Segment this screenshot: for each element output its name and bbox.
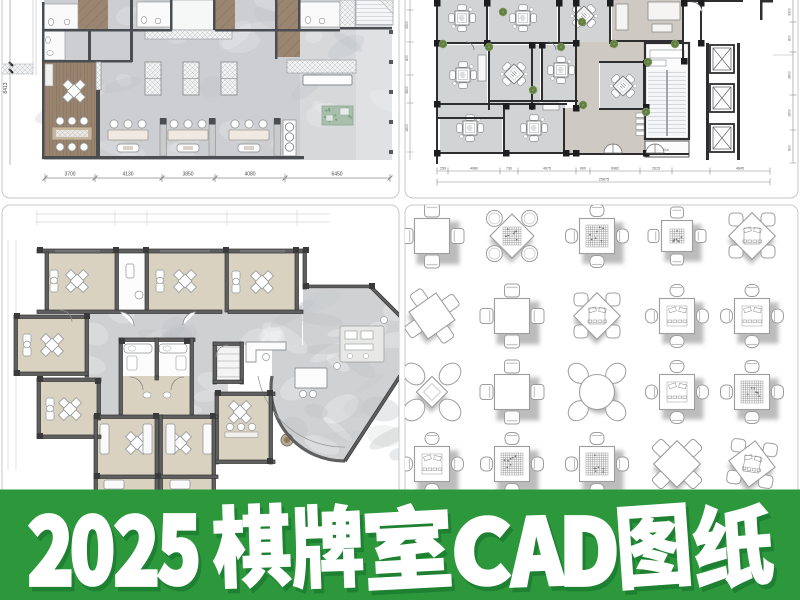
svg-text:4675: 4675 <box>543 167 551 171</box>
svg-text:730: 730 <box>506 167 512 171</box>
svg-text:3850: 3850 <box>182 172 193 178</box>
svg-text:800: 800 <box>788 35 792 41</box>
svg-text:600: 600 <box>580 167 586 171</box>
svg-text:25675: 25675 <box>599 178 610 182</box>
svg-text:4980: 4980 <box>470 167 478 171</box>
svg-text:4130: 4130 <box>122 172 133 178</box>
svg-text:3700: 3700 <box>64 172 75 178</box>
svg-text:4080: 4080 <box>244 172 255 178</box>
svg-text:1600: 1600 <box>405 124 409 132</box>
svg-text:1600: 1600 <box>788 109 792 117</box>
svg-text:250: 250 <box>440 167 446 171</box>
svg-text:800: 800 <box>788 145 792 151</box>
svg-text:2500: 2500 <box>405 21 409 29</box>
svg-text:8413: 8413 <box>3 82 9 93</box>
svg-text:6982: 6982 <box>611 167 619 171</box>
svg-text:6450: 6450 <box>331 172 342 178</box>
svg-text:2615: 2615 <box>652 167 660 171</box>
svg-text:3600: 3600 <box>405 86 409 94</box>
svg-text:3300: 3300 <box>788 8 792 16</box>
svg-text:4845: 4845 <box>736 167 744 171</box>
svg-text:800: 800 <box>405 55 409 61</box>
svg-text:3600: 3600 <box>788 71 792 79</box>
